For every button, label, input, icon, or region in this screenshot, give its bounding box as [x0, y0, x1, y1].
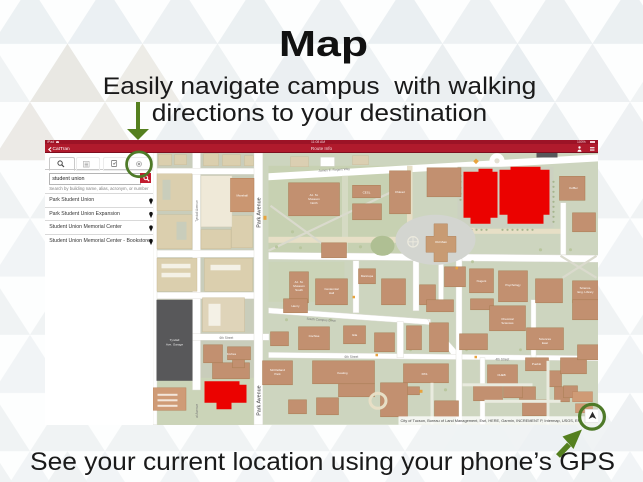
svg-text:Henry: Henry — [291, 304, 299, 308]
svg-text:Sciences: Sciences — [501, 321, 514, 325]
svg-text:Ave. Garage: Ave. Garage — [165, 342, 183, 346]
svg-text:Pueblo: Pueblo — [531, 362, 541, 366]
svg-text:PAS: PAS — [421, 372, 427, 376]
svg-text:Gila: Gila — [351, 333, 357, 337]
svg-text:Nugent: Nugent — [476, 279, 486, 283]
svg-text:Keating: Keating — [337, 371, 347, 375]
svg-text:Psychology: Psychology — [505, 283, 521, 287]
svg-text:Park: Park — [274, 372, 281, 376]
svg-text:6th Street: 6th Street — [219, 336, 233, 340]
svg-text:CHEB: CHEB — [497, 373, 505, 377]
svg-text:Park Avenue: Park Avenue — [256, 198, 262, 228]
svg-text:North: North — [310, 201, 318, 205]
svg-text:City of Tucson, Bureau of Land: City of Tucson, Bureau of Land Managemen… — [400, 418, 580, 423]
svg-text:Marshall: Marshall — [236, 193, 248, 197]
svg-text:Hall: Hall — [328, 291, 333, 295]
svg-text:Tyndall: Tyndall — [169, 338, 179, 342]
svg-text:6th Street: 6th Street — [344, 355, 358, 359]
svg-text:Cochise: Cochise — [308, 334, 319, 338]
svg-text:Chávez: Chávez — [394, 190, 405, 194]
svg-text:South: South — [295, 288, 303, 292]
svg-text:CESL: CESL — [362, 190, 370, 194]
svg-text:Tyndall Avenue: Tyndall Avenue — [195, 200, 199, 222]
svg-text:Eng. Library: Eng. Library — [577, 290, 594, 294]
svg-text:East: East — [542, 341, 548, 345]
svg-text:Park Avenue: Park Avenue — [256, 386, 262, 416]
svg-text:Forbes: Forbes — [226, 352, 236, 356]
svg-text:al Avenue: al Avenue — [195, 404, 199, 418]
svg-text:Old Main: Old Main — [435, 240, 447, 244]
svg-text:Maricopa: Maricopa — [360, 274, 373, 278]
svg-text:4th Street: 4th Street — [495, 357, 509, 361]
svg-text:Koffler: Koffler — [569, 186, 578, 190]
